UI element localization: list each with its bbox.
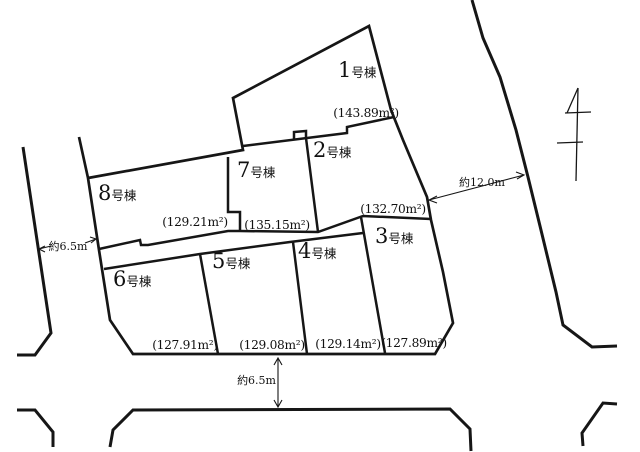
lot-4-suffix: 号棟: [311, 246, 337, 261]
road-right-east-edge: [472, 0, 617, 347]
lot-2-number: 2: [313, 138, 326, 162]
lot-5-suffix: 号棟: [225, 256, 251, 271]
lot-labels: 1号棟 2号棟 3号棟 4号棟 5号棟 6号棟 7号棟 8号棟: [98, 58, 414, 291]
lot-8-suffix: 号棟: [111, 188, 137, 203]
lot-3-number: 3: [375, 224, 388, 248]
lot-7-suffix: 号棟: [250, 165, 276, 180]
lot-1-label: 1号棟: [338, 58, 377, 82]
lot-4-label: 4号棟: [298, 239, 337, 263]
lot-1-area-label: (143.89m²): [333, 106, 399, 120]
road-left-west-edge: [17, 147, 51, 355]
lot-6-suffix: 号棟: [126, 274, 152, 289]
lot-2-area-label: (132.70m²): [360, 202, 426, 216]
lot-5-area-label: (129.08m²): [239, 338, 305, 352]
lot-5-label: 5号棟: [212, 249, 251, 273]
dim-bottom-road-label: 約6.5m: [237, 373, 276, 387]
lot-area-labels: (143.89m²) (132.70m²) (127.89m²) (129.14…: [152, 106, 447, 352]
lot-7-area-label: (135.15m²): [244, 218, 310, 232]
dim-left-road-label: 約6.5m: [49, 239, 88, 253]
lot-2-label: 2号棟: [313, 138, 352, 162]
lot-3-label: 3号棟: [375, 224, 414, 248]
road-bottom-southeast-corner: [582, 403, 617, 446]
lot-1-number: 1: [338, 58, 351, 82]
lot-1-suffix: 号棟: [351, 65, 377, 80]
plot-diagram-canvas: 1号棟 2号棟 3号棟 4号棟 5号棟 6号棟 7号棟 8号棟 (143.89m…: [0, 0, 640, 452]
road-bottom-southwest-corner: [17, 410, 53, 447]
lot-8-area-label: (129.21m²): [162, 215, 228, 229]
lot-7-label: 7号棟: [237, 158, 276, 182]
lot-4-area-label: (129.14m²): [315, 337, 381, 351]
lot-2-suffix: 号棟: [326, 145, 352, 160]
dim-right-road-label: 約12.0m: [459, 175, 505, 189]
road-bottom-south-edge: [110, 409, 471, 451]
lot-6-label: 6号棟: [113, 267, 152, 291]
lot-3-suffix: 号棟: [388, 231, 414, 246]
plot-diagram: 1号棟 2号棟 3号棟 4号棟 5号棟 6号棟 7号棟 8号棟 (143.89m…: [0, 0, 640, 452]
lot-6-area-label: (127.91m²): [152, 338, 218, 352]
dimension-arrows: [39, 172, 524, 407]
lot-6-number: 6: [113, 267, 126, 291]
lot-8-label: 8号棟: [98, 181, 137, 205]
lot-4-number: 4: [298, 239, 311, 263]
lot-8-number: 8: [98, 181, 111, 205]
lot-7-number: 7: [237, 158, 250, 182]
north-arrow-icon: [557, 88, 591, 181]
lot-3-area-label: (127.89m²): [381, 336, 447, 350]
lot-5-number: 5: [212, 249, 225, 273]
